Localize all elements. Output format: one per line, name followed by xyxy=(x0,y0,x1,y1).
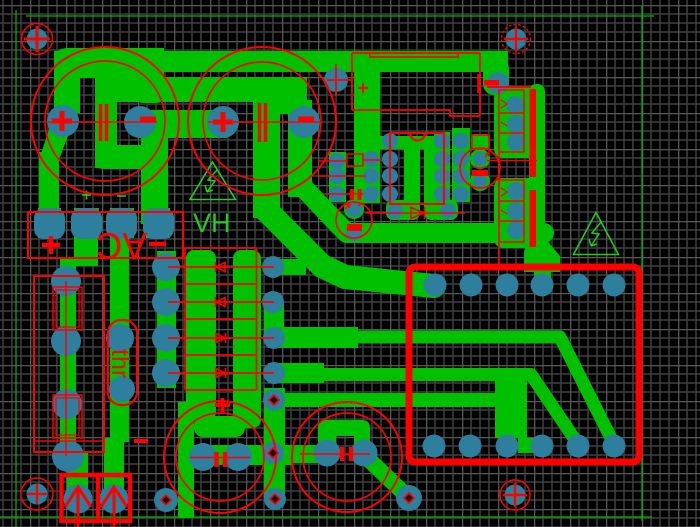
svg-text:thr: thr xyxy=(106,349,134,378)
svg-text:AC: AC xyxy=(96,225,147,266)
svg-text:VH: VH xyxy=(193,208,231,238)
